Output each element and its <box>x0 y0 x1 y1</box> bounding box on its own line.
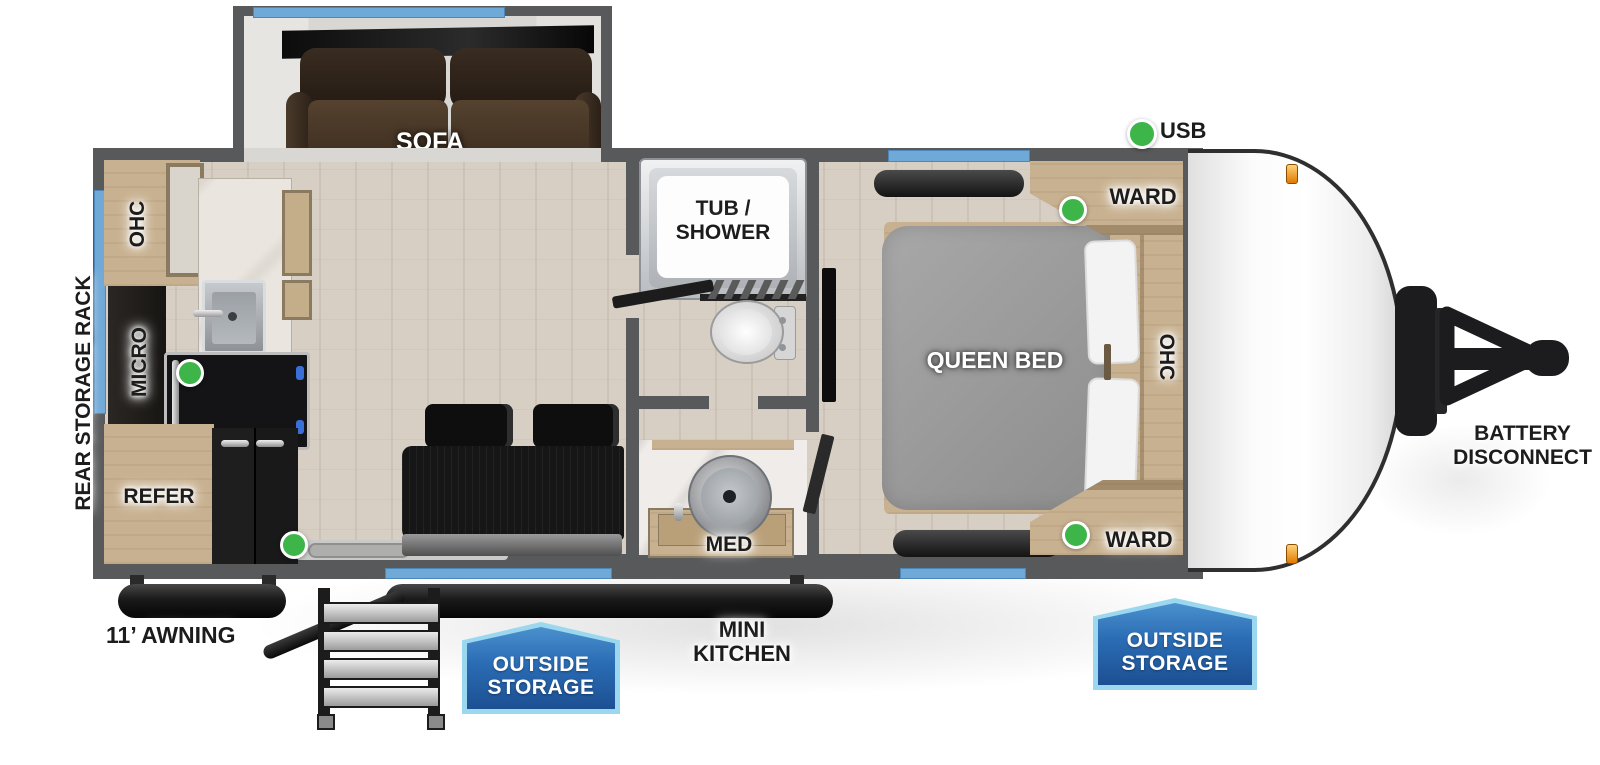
usb-indicator-wardrobe-bottom <box>1062 521 1090 549</box>
mini-kitchen-label-line1: MINI <box>672 618 812 642</box>
outside-storage-front-line2: STORAGE <box>1122 653 1229 676</box>
entry-mat <box>308 543 410 558</box>
dinette-chair-right <box>533 404 619 448</box>
front-marker-light-bottom <box>1286 544 1298 564</box>
wardrobe-top-label: WARD <box>1104 184 1182 210</box>
step-foot-right <box>427 714 445 730</box>
refer-handle-right <box>256 440 284 447</box>
step-tread-1 <box>322 602 440 624</box>
battery-disconnect-label-line2: DISCONNECT <box>1425 446 1600 470</box>
bath-bedroom-wall-upper <box>806 161 819 432</box>
tub-shower-label-line2: SHOWER <box>673 222 773 244</box>
wardrobe-bottom-label: WARD <box>1100 527 1178 553</box>
dinette-table <box>402 446 624 540</box>
outside-storage-badge-door-side: OUTSIDE STORAGE <box>462 622 620 714</box>
dinette-kick-panel <box>402 534 622 556</box>
outside-storage-door-line1: OUTSIDE <box>493 654 590 677</box>
rear-bumper-tube <box>118 584 286 618</box>
bedroom-top-window-strip <box>888 150 1030 162</box>
toilet-seat <box>720 309 772 355</box>
entry-side-window-strip <box>385 568 612 579</box>
rear-storage-rack-label: REAR STORAGE RACK <box>71 263 97 523</box>
outside-storage-badge-front: OUTSIDE STORAGE <box>1093 598 1257 690</box>
floorplan-diagram: SOFA OHC MICRO REFER <box>0 0 1600 765</box>
bedroom-bottom-window-strip <box>900 568 1026 579</box>
usb-legend-label: USB <box>1160 118 1230 144</box>
step-tread-3 <box>322 658 440 680</box>
bath-left-wall-upper <box>626 161 639 255</box>
awning-label: 11’ AWNING <box>106 620 276 650</box>
bedroom-ohc-label: OHC <box>1154 312 1178 402</box>
toilet-hinge-bottom <box>779 344 786 351</box>
side-bumper-tube <box>385 584 833 618</box>
micro-label: MICRO <box>128 317 152 407</box>
refer-label: REFER <box>118 484 200 510</box>
kitchen-sink-drain <box>228 312 237 321</box>
step-foot-left <box>317 714 335 730</box>
step-tread-2 <box>322 630 440 652</box>
usb-legend-dot <box>1127 119 1157 149</box>
kitchen-upper-cabinet-door-2 <box>282 280 312 320</box>
dinette-chair-left <box>425 404 513 448</box>
usb-indicator-entry <box>280 531 308 559</box>
outside-storage-door-line2: STORAGE <box>488 677 595 700</box>
toilet-hinge-top <box>779 317 786 324</box>
kitchen-ohc-label: OHC <box>126 179 150 269</box>
bath-divider-wall-right <box>758 396 819 409</box>
med-label: MED <box>696 533 762 557</box>
bath-divider-wall-left <box>639 396 709 409</box>
med-sink-drain <box>723 490 736 503</box>
queen-bed-label: QUEEN BED <box>925 346 1065 374</box>
outside-storage-front-line1: OUTSIDE <box>1127 630 1224 653</box>
step-tread-4 <box>322 686 440 708</box>
bedroom-bench-top <box>874 170 1024 197</box>
bath-left-wall-lower <box>626 318 639 555</box>
kitchen-upper-cabinet-door-1 <box>282 190 312 276</box>
microwave-hinge-glint-top <box>296 366 304 380</box>
slideout-window-strip <box>253 7 505 18</box>
battery-disconnect-label-line1: BATTERY <box>1425 422 1600 446</box>
bed-headboard-handle <box>1104 344 1111 380</box>
mini-kitchen-label-line2: KITCHEN <box>672 642 812 666</box>
bed-pillow-top <box>1084 239 1140 365</box>
usb-indicator-kitchen <box>176 359 204 387</box>
front-marker-light-top <box>1286 164 1298 184</box>
slideout-left-wall <box>233 6 244 162</box>
tub-shower-label-line1: TUB / <box>673 198 773 220</box>
med-room-ledge <box>652 440 794 450</box>
slideout-aperture <box>244 148 601 162</box>
usb-indicator-wardrobe-top <box>1059 196 1087 224</box>
med-faucet <box>674 503 683 521</box>
refer-handle-left <box>221 440 249 447</box>
bedroom-tv <box>822 268 836 402</box>
kitchen-faucet <box>193 310 223 317</box>
slideout-right-wall <box>601 6 612 162</box>
